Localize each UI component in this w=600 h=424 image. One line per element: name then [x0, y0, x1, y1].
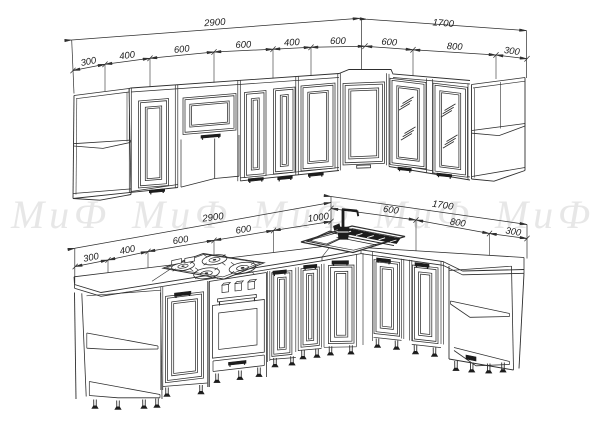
svg-text:600: 600	[382, 203, 400, 216]
svg-text:600: 600	[173, 42, 190, 55]
svg-text:2900: 2900	[203, 17, 227, 30]
svg-text:600: 600	[381, 36, 398, 48]
svg-text:800: 800	[447, 40, 464, 52]
svg-text:600: 600	[330, 35, 347, 46]
svg-text:300: 300	[503, 44, 521, 57]
svg-text:400: 400	[119, 48, 137, 61]
svg-text:1700: 1700	[432, 17, 455, 30]
svg-text:МиФ: МиФ	[10, 192, 106, 237]
svg-text:400: 400	[284, 36, 301, 48]
svg-text:600: 600	[235, 38, 252, 50]
